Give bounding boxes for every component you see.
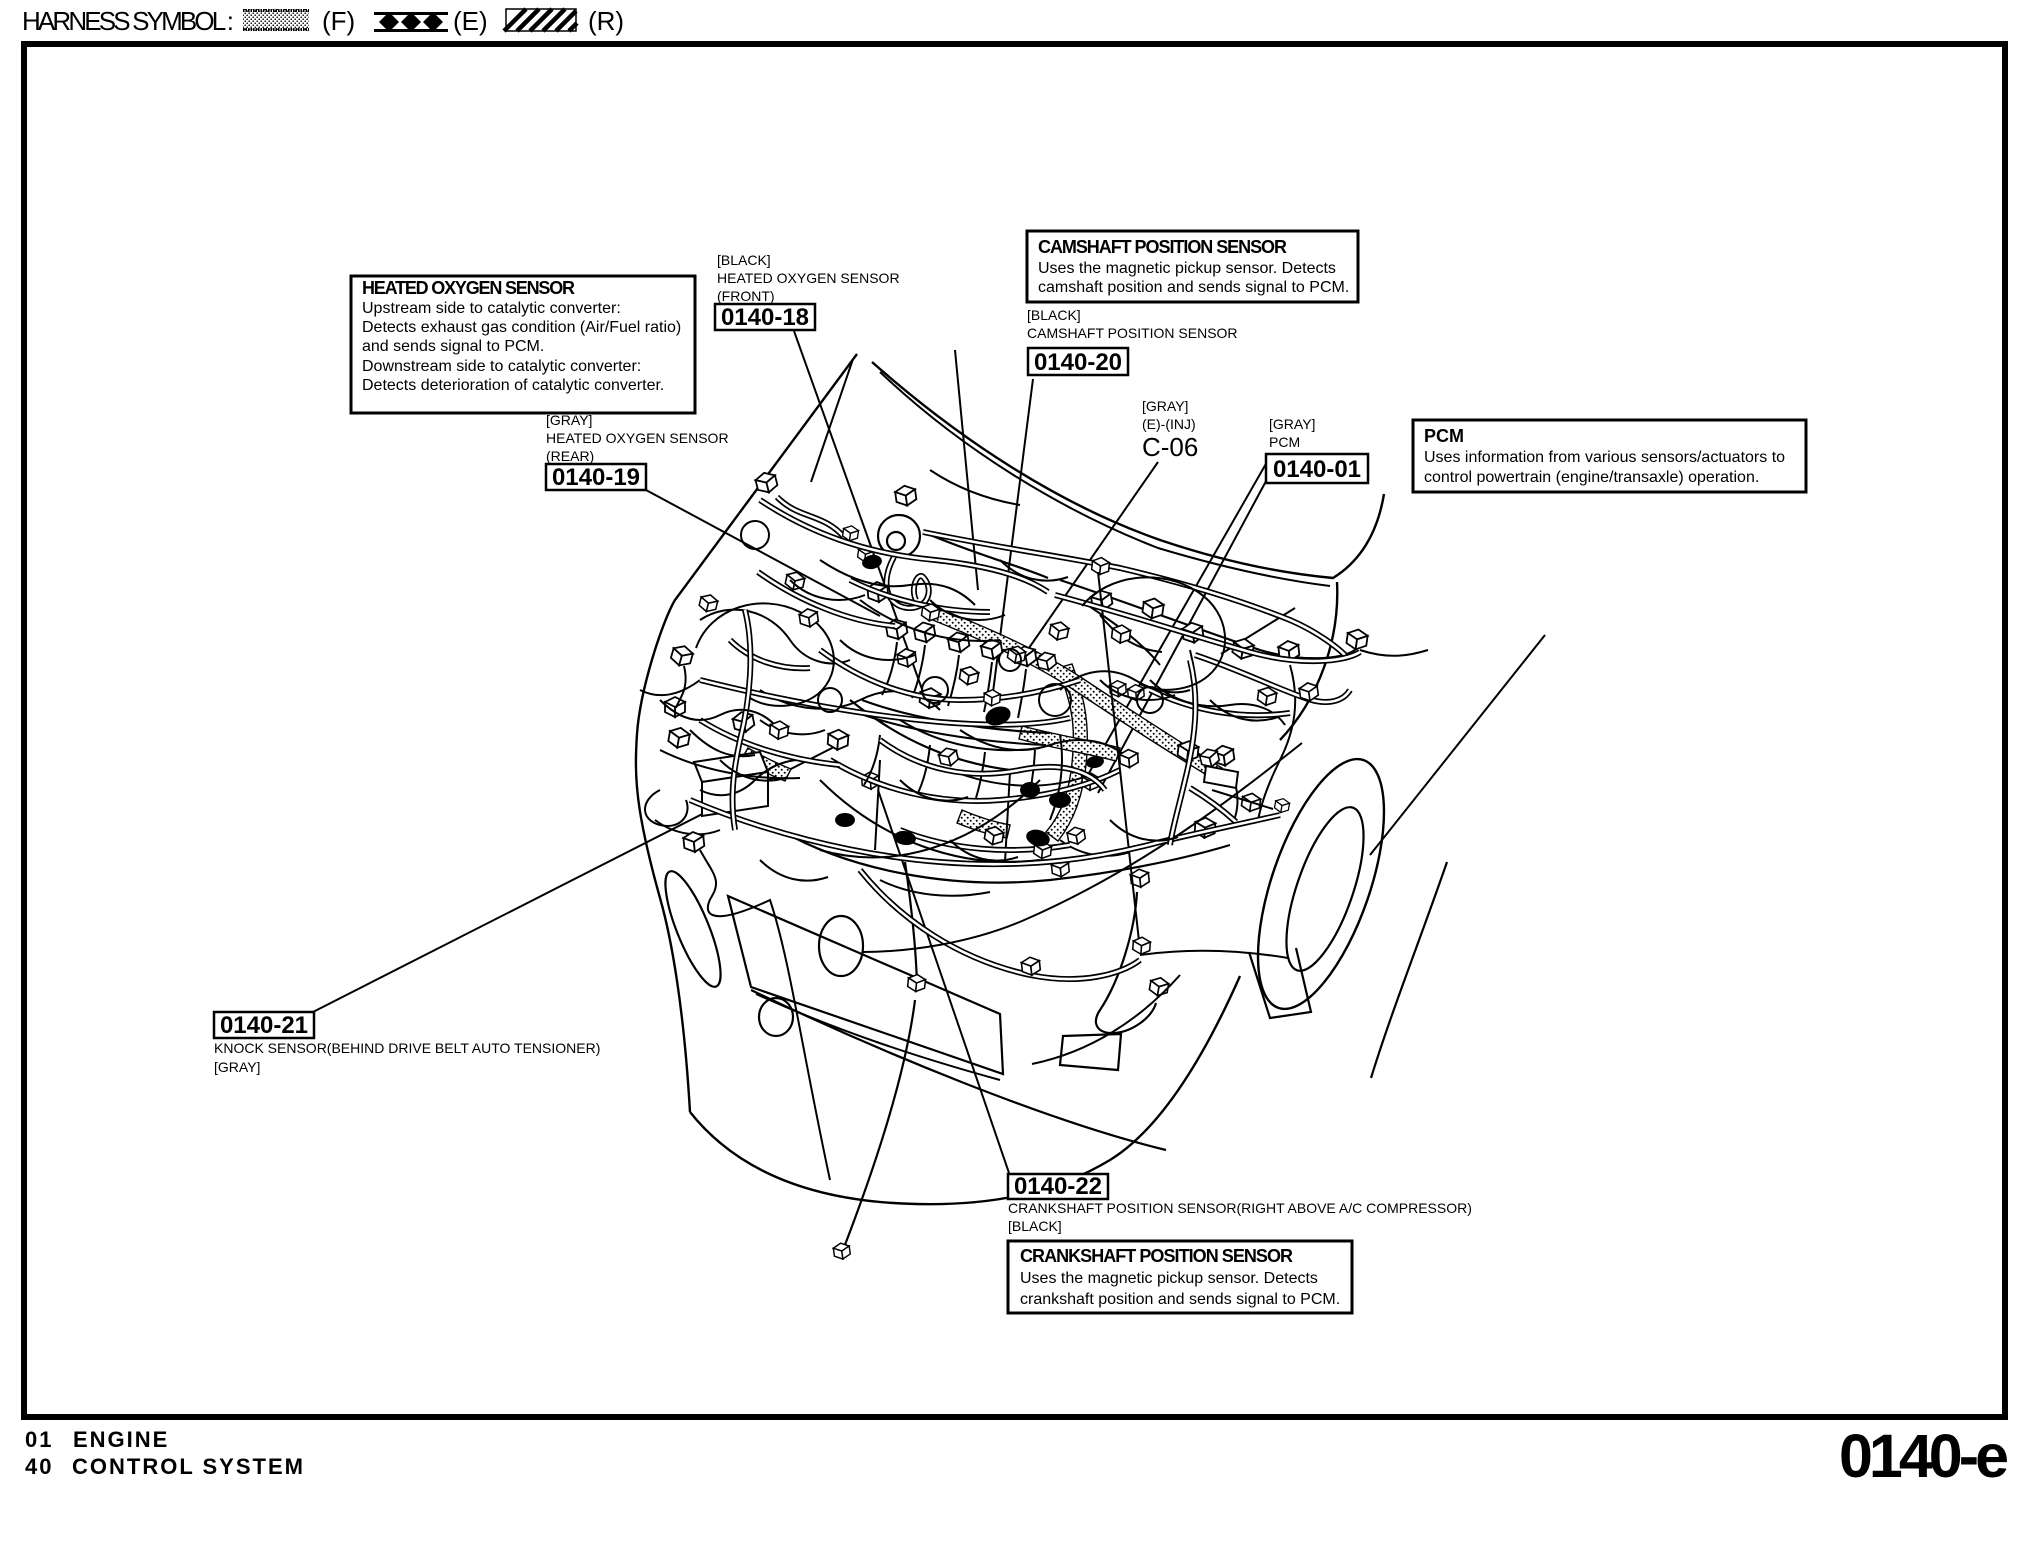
svg-text:[BLACK]: [BLACK] bbox=[717, 252, 771, 268]
svg-text:CRANKSHAFT POSITION SENSOR: CRANKSHAFT POSITION SENSOR bbox=[1020, 1246, 1293, 1266]
svg-text:C-06: C-06 bbox=[1142, 432, 1198, 462]
svg-text:[GRAY]: [GRAY] bbox=[214, 1059, 260, 1075]
svg-text:Upstream side to catalytic con: Upstream side to catalytic converter: bbox=[362, 300, 621, 317]
svg-text:Detects deterioration of catal: Detects deterioration of catalytic conve… bbox=[362, 377, 664, 394]
svg-text:[BLACK]: [BLACK] bbox=[1027, 307, 1081, 323]
svg-text:CONTROL SYSTEM: CONTROL SYSTEM bbox=[72, 1454, 305, 1479]
svg-text:KNOCK SENSOR(BEHIND DRIVE BELT: KNOCK SENSOR(BEHIND DRIVE BELT AUTO TENS… bbox=[214, 1040, 600, 1056]
svg-text:PCM: PCM bbox=[1424, 426, 1464, 446]
svg-text:Downstream side to catalytic c: Downstream side to catalytic converter: bbox=[362, 358, 641, 375]
svg-text:camshaft position and sends si: camshaft position and sends signal to PC… bbox=[1038, 279, 1349, 296]
svg-text:0140-21: 0140-21 bbox=[220, 1012, 308, 1039]
svg-text:Uses the magnetic pickup senso: Uses the magnetic pickup sensor. Detects bbox=[1038, 260, 1336, 277]
svg-text:crankshaft position and sends: crankshaft position and sends signal to … bbox=[1020, 1291, 1340, 1308]
svg-text:0140-e: 0140-e bbox=[1839, 1422, 2009, 1490]
svg-text:(REAR): (REAR) bbox=[546, 448, 594, 464]
svg-text:HEATED OXYGEN SENSOR: HEATED OXYGEN SENSOR bbox=[362, 278, 575, 298]
svg-text:0140-22: 0140-22 bbox=[1014, 1173, 1102, 1200]
svg-text:CAMSHAFT POSITION SENSOR: CAMSHAFT POSITION SENSOR bbox=[1038, 237, 1287, 257]
svg-text:HARNESS SYMBOL :: HARNESS SYMBOL : bbox=[22, 6, 234, 36]
svg-text:(R): (R) bbox=[588, 6, 624, 36]
svg-text:[GRAY]: [GRAY] bbox=[1142, 398, 1188, 414]
svg-text:(FRONT): (FRONT) bbox=[717, 288, 775, 304]
svg-text:40: 40 bbox=[25, 1454, 53, 1479]
svg-text:control powertrain (engine/tra: control powertrain (engine/transaxle) op… bbox=[1424, 469, 1759, 486]
svg-text:HEATED OXYGEN SENSOR: HEATED OXYGEN SENSOR bbox=[717, 270, 900, 286]
svg-text:[GRAY]: [GRAY] bbox=[546, 412, 592, 428]
svg-text:PCM: PCM bbox=[1269, 434, 1300, 450]
svg-text:[BLACK]: [BLACK] bbox=[1008, 1218, 1062, 1234]
svg-text:and sends signal to PCM.: and sends signal to PCM. bbox=[362, 338, 544, 355]
svg-text:0140-01: 0140-01 bbox=[1273, 456, 1361, 483]
svg-text:CAMSHAFT POSITION SENSOR: CAMSHAFT POSITION SENSOR bbox=[1027, 325, 1238, 341]
svg-text:ENGINE: ENGINE bbox=[73, 1427, 169, 1452]
svg-text:[GRAY]: [GRAY] bbox=[1269, 416, 1315, 432]
svg-text:0140-18: 0140-18 bbox=[721, 304, 809, 331]
svg-text:(E)-(INJ): (E)-(INJ) bbox=[1142, 416, 1196, 432]
svg-text:Uses information from various: Uses information from various sensors/ac… bbox=[1424, 449, 1785, 466]
svg-text:0140-20: 0140-20 bbox=[1034, 349, 1122, 376]
svg-text:Detects exhaust gas condition: Detects exhaust gas condition (Air/Fuel … bbox=[362, 319, 681, 336]
svg-text:Uses the magnetic pickup senso: Uses the magnetic pickup sensor. Detects bbox=[1020, 1270, 1318, 1287]
svg-text:CRANKSHAFT POSITION SENSOR(RIG: CRANKSHAFT POSITION SENSOR(RIGHT ABOVE A… bbox=[1008, 1200, 1472, 1216]
svg-text:HEATED OXYGEN SENSOR: HEATED OXYGEN SENSOR bbox=[546, 430, 729, 446]
svg-text:0140-19: 0140-19 bbox=[552, 464, 640, 491]
svg-text:(E): (E) bbox=[453, 6, 488, 36]
svg-text:01: 01 bbox=[25, 1427, 53, 1452]
svg-text:(F): (F) bbox=[322, 6, 355, 36]
